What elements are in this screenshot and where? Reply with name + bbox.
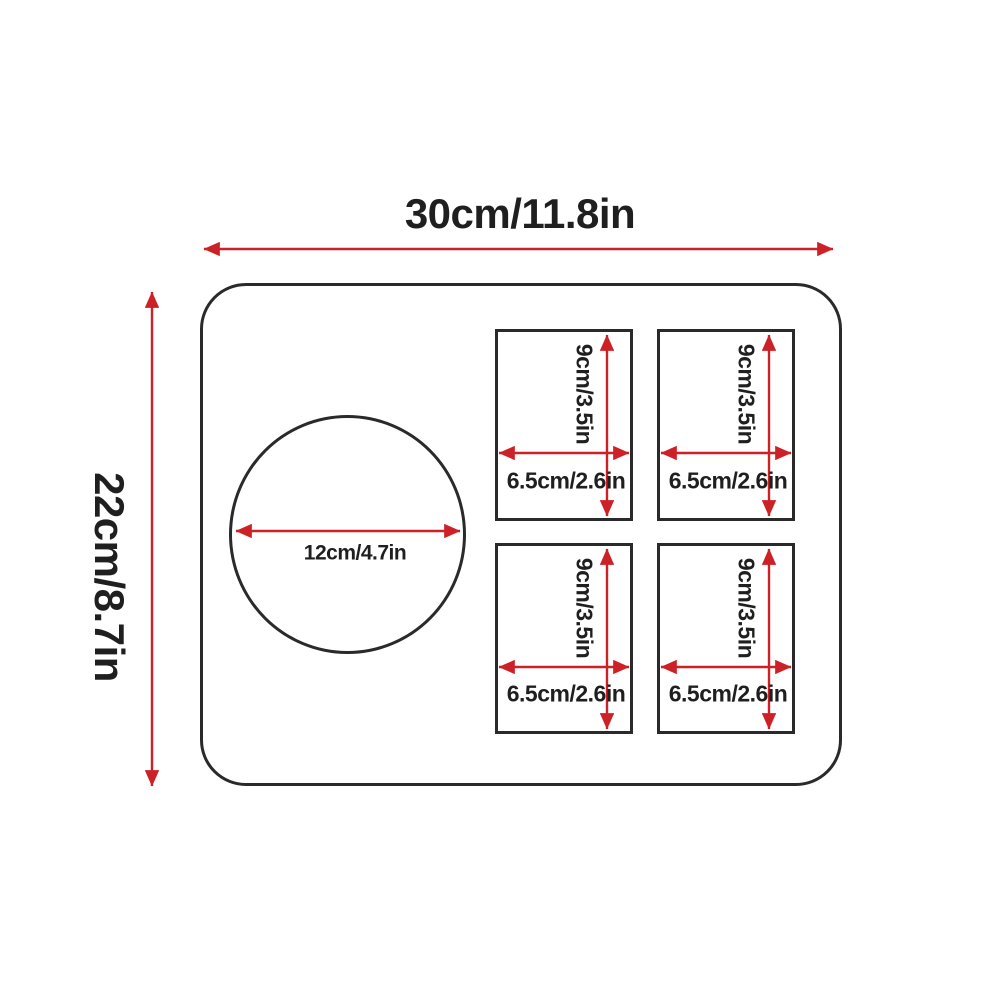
rect-bottom-left-width-label: 6.5cm/2.6in <box>507 683 626 706</box>
rect-top-right-height-label: 9cm/3.5in <box>735 344 758 444</box>
rect-top-left-height-label: 9cm/3.5in <box>573 344 596 444</box>
rect-bottom-right-width-label: 6.5cm/2.6in <box>669 683 788 706</box>
overall-height-label: 22cm/8.7in <box>88 472 130 682</box>
circle-diameter-label: 12cm/4.7in <box>304 543 406 564</box>
rect-top-left-width-label: 6.5cm/2.6in <box>507 470 626 493</box>
rect-bottom-right-height-label: 9cm/3.5in <box>735 558 758 658</box>
overall-width-label: 30cm/11.8in <box>405 193 635 235</box>
rect-top-right-width-label: 6.5cm/2.6in <box>669 470 788 493</box>
rect-bottom-left-height-label: 9cm/3.5in <box>573 558 596 658</box>
circle-cutout <box>229 415 466 654</box>
placemat-dimension-diagram: 30cm/11.8in 22cm/8.7in 12cm/4.7in 6.5cm/… <box>0 0 1000 1000</box>
